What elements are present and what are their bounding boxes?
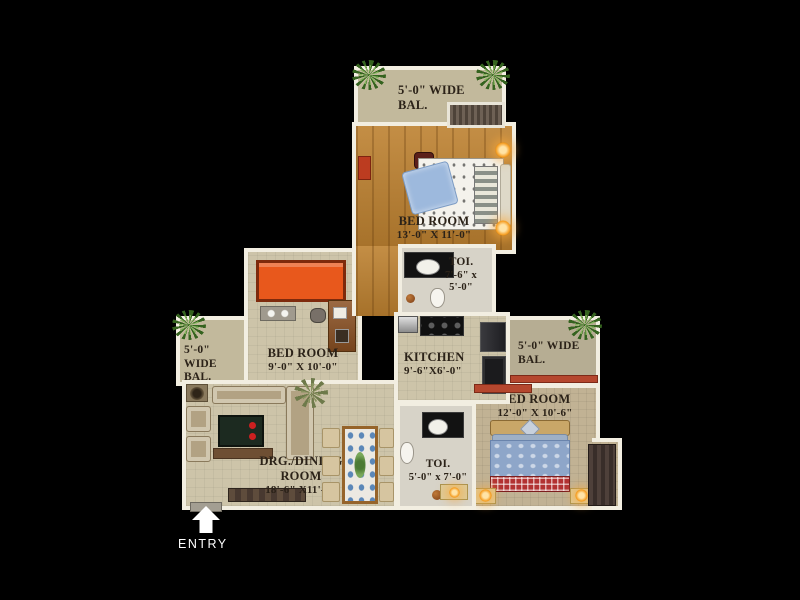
wash-basin bbox=[428, 419, 448, 435]
vanity-counter bbox=[422, 412, 464, 438]
bedroom-left-label: BED ROOM 9'-0" X 10'-0" bbox=[248, 346, 358, 374]
desk-chair bbox=[310, 308, 326, 323]
rug bbox=[358, 156, 371, 180]
double-bed bbox=[490, 440, 570, 478]
bedside-lamp-icon bbox=[575, 489, 588, 502]
room-bedroom-top: BED ROOM 13'-0" X 11'-0" bbox=[352, 122, 516, 254]
floor-plan-canvas: 5'-0" WIDE BAL. BED ROOM 13'-0" X 11'-0"… bbox=[0, 0, 800, 600]
toilet-bottom-label: TOI. 5'-0" x 7'-0" bbox=[406, 458, 470, 484]
room-dimensions: 13'-0" X 11'-0" bbox=[356, 229, 512, 242]
room-toilet-top: TOI. 7'-6" x 5'-0" bbox=[398, 244, 496, 318]
room-toilet-bottom: TOI. 5'-0" x 7'-0" bbox=[396, 402, 476, 510]
dining-chair bbox=[379, 456, 394, 476]
bedroom-top-label: BED ROOM 13'-0" X 11'-0" bbox=[356, 214, 512, 242]
room-name: BAL. bbox=[518, 354, 580, 368]
armchair bbox=[186, 406, 211, 432]
room-name: 5'-0" WIDE bbox=[184, 344, 244, 371]
bed-foot-runner bbox=[490, 476, 570, 492]
dining-chair bbox=[322, 482, 340, 502]
room-name: KITCHEN bbox=[404, 350, 464, 365]
sofa bbox=[212, 386, 286, 404]
toilet-top-label: TOI. 7'-6" x 5'-0" bbox=[432, 256, 490, 294]
room-dimensions: 7'-6" x 5'-0" bbox=[432, 270, 490, 295]
stove bbox=[420, 316, 464, 336]
room-balcony-left: 5'-0" WIDE BAL. bbox=[176, 316, 248, 386]
coffee-table bbox=[218, 415, 264, 447]
bedside-lamp-icon bbox=[495, 142, 511, 158]
room-drg-dining: DRG./DINING ROOM 18'-6" X11'-0" bbox=[182, 380, 398, 510]
dining-chair bbox=[322, 428, 340, 448]
hallway-floor bbox=[352, 246, 402, 316]
room-bedroom-left: BED ROOM 9'-0" X 10'-0" bbox=[244, 248, 362, 386]
room-dimensions: 9'-0" X 10'-0" bbox=[248, 361, 358, 374]
lamp-glow-icon bbox=[449, 487, 460, 498]
microwave bbox=[398, 316, 418, 333]
room-balcony-right: 5'-0" WIDE BAL. bbox=[506, 316, 600, 384]
plant-icon bbox=[568, 310, 602, 340]
low-shelf bbox=[260, 306, 296, 321]
window-sill bbox=[510, 375, 598, 383]
sliding-window-grille bbox=[447, 102, 505, 128]
room-name: 5'-0" WIDE bbox=[398, 83, 465, 98]
room-dimensions: 5'-0" x 7'-0" bbox=[406, 472, 470, 484]
single-bed-orange bbox=[256, 260, 346, 302]
plant-icon bbox=[294, 378, 328, 408]
dining-chair bbox=[322, 456, 340, 476]
room-dimensions: 12'-0" X 10'-6" bbox=[474, 407, 596, 420]
corner-table bbox=[186, 384, 208, 402]
balcony-right-label: 5'-0" WIDE BAL. bbox=[518, 340, 580, 367]
room-dimensions: 9'-6"X6'-0" bbox=[404, 365, 464, 378]
desk-book bbox=[335, 329, 349, 343]
dining-table bbox=[342, 426, 378, 504]
room-name: TOI. bbox=[432, 256, 490, 270]
entry-label: ENTRY bbox=[178, 537, 248, 551]
bedside-lamp-icon bbox=[479, 489, 492, 502]
room-name: 5'-0" WIDE bbox=[518, 340, 580, 354]
nightstand bbox=[474, 488, 496, 504]
room-name: TOI. bbox=[406, 458, 470, 472]
wardrobe bbox=[588, 444, 616, 506]
plant-icon bbox=[476, 60, 510, 90]
room-name: BED ROOM bbox=[248, 346, 358, 361]
desk-papers bbox=[333, 307, 347, 319]
entry-arrow-icon bbox=[191, 506, 221, 536]
table-centerpiece bbox=[355, 452, 366, 478]
room-name: BED ROOM bbox=[356, 214, 512, 229]
armchair bbox=[186, 436, 211, 462]
kitchen-label: KITCHEN 9'-6"X6'-0" bbox=[404, 350, 464, 378]
fridge bbox=[480, 322, 506, 352]
bath-mat bbox=[440, 484, 468, 500]
window-sill bbox=[474, 384, 532, 393]
plant-icon bbox=[172, 310, 206, 340]
pot bbox=[406, 294, 415, 303]
balcony-left-label: 5'-0" WIDE BAL. bbox=[184, 344, 244, 385]
plant-icon bbox=[352, 60, 386, 90]
dining-chair bbox=[379, 482, 394, 502]
dining-chair bbox=[379, 428, 394, 448]
